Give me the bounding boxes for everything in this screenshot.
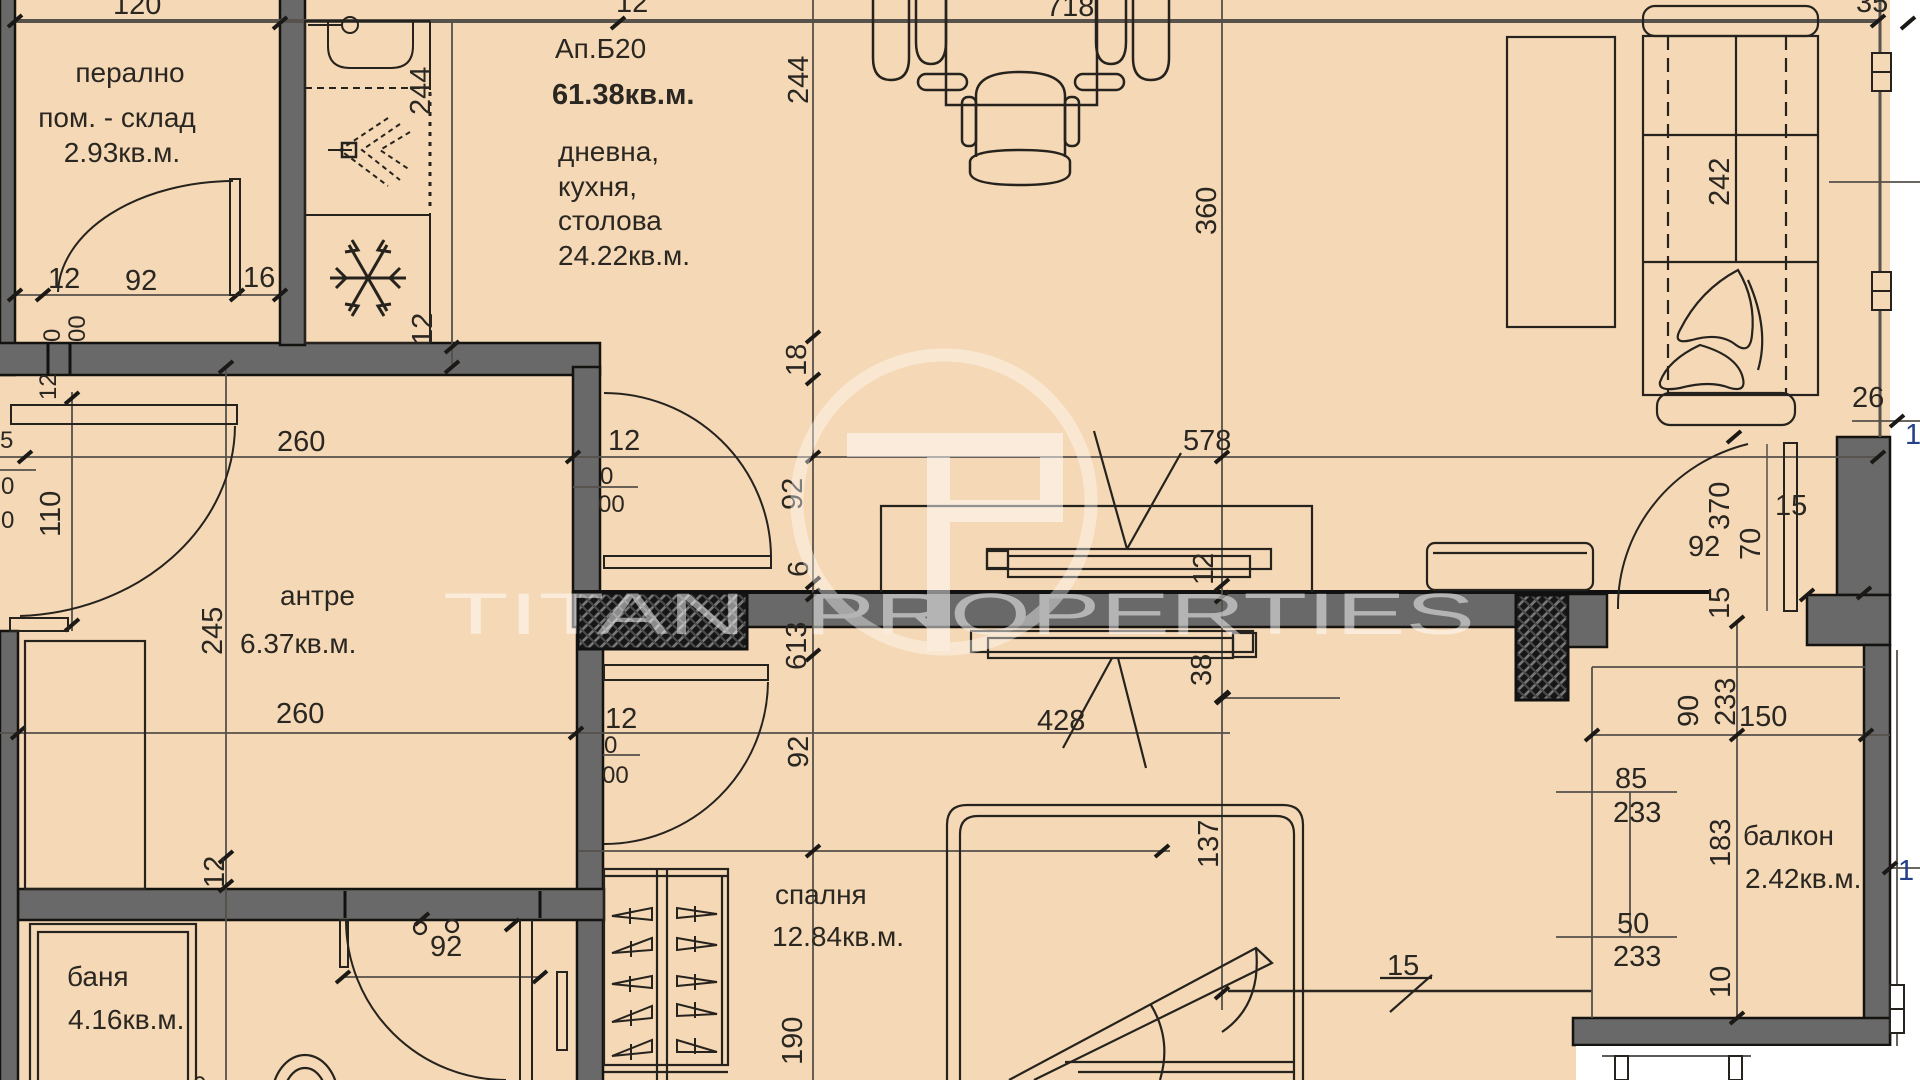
svg-text:35: 35: [1856, 0, 1888, 19]
svg-text:360: 360: [1191, 187, 1223, 235]
svg-text:38: 38: [1186, 654, 1218, 686]
svg-text:190: 190: [777, 1017, 809, 1065]
svg-text:120: 120: [113, 0, 161, 21]
svg-text:12: 12: [199, 856, 231, 888]
svg-text:перално: перално: [75, 57, 184, 88]
svg-text:12: 12: [48, 263, 80, 295]
svg-text:12: 12: [1188, 553, 1220, 585]
svg-text:4.16кв.м.: 4.16кв.м.: [68, 1004, 184, 1035]
svg-text:1: 1: [1898, 855, 1914, 887]
svg-text:12: 12: [608, 425, 640, 457]
svg-text:кухня,: кухня,: [558, 171, 637, 202]
svg-text:12: 12: [605, 703, 637, 735]
svg-text:5: 5: [0, 427, 13, 454]
svg-text:00: 00: [602, 762, 629, 789]
svg-text:столова: столова: [558, 205, 662, 236]
svg-text:12: 12: [407, 313, 439, 345]
svg-text:6.37кв.м.: 6.37кв.м.: [240, 628, 356, 659]
svg-text:137: 137: [1193, 820, 1225, 868]
svg-text:260: 260: [277, 426, 325, 458]
svg-text:0: 0: [1, 507, 14, 534]
svg-text:233: 233: [1613, 797, 1661, 829]
svg-text:0: 0: [604, 732, 617, 759]
svg-text:0: 0: [1, 473, 14, 500]
svg-text:антре: антре: [280, 580, 355, 611]
svg-text:242: 242: [1704, 158, 1736, 206]
svg-text:92: 92: [783, 736, 815, 768]
svg-text:0: 0: [193, 1072, 206, 1080]
svg-text:428: 428: [1037, 705, 1085, 737]
svg-text:12: 12: [35, 373, 62, 400]
svg-text:PROPERTIES: PROPERTIES: [805, 582, 1475, 647]
svg-text:2.93кв.м.: 2.93кв.м.: [64, 137, 180, 168]
svg-text:18: 18: [781, 344, 813, 376]
svg-text:183: 183: [1705, 819, 1737, 867]
svg-text:TITAN: TITAN: [443, 582, 746, 647]
svg-text:2.42кв.м.: 2.42кв.м.: [1745, 863, 1861, 894]
svg-text:110: 110: [35, 491, 67, 537]
svg-text:15: 15: [1704, 587, 1736, 619]
svg-text:0: 0: [600, 463, 613, 490]
svg-text:260: 260: [276, 698, 324, 730]
svg-text:244: 244: [405, 67, 437, 115]
svg-text:1: 1: [1905, 419, 1920, 451]
svg-text:10: 10: [1705, 966, 1737, 998]
svg-text:12: 12: [616, 0, 648, 19]
svg-text:70: 70: [1735, 528, 1767, 560]
svg-text:дневна,: дневна,: [558, 136, 659, 167]
svg-text:Ап.Б20: Ап.Б20: [555, 33, 646, 64]
svg-text:150: 150: [1739, 701, 1787, 733]
svg-text:спалня: спалня: [775, 879, 867, 910]
svg-text:90: 90: [1673, 695, 1705, 727]
svg-text:61.38кв.м.: 61.38кв.м.: [552, 79, 694, 111]
svg-text:92: 92: [430, 931, 462, 963]
svg-text:233: 233: [1710, 678, 1742, 726]
svg-text:пом. - склад: пом. - склад: [38, 102, 195, 133]
svg-text:92: 92: [125, 265, 157, 297]
svg-text:578: 578: [1183, 425, 1231, 457]
svg-text:26: 26: [1852, 382, 1884, 414]
svg-text:балкон: балкон: [1743, 820, 1834, 851]
svg-text:15: 15: [1387, 950, 1419, 982]
svg-text:12.84кв.м.: 12.84кв.м.: [772, 921, 904, 952]
svg-text:233: 233: [1613, 941, 1661, 973]
svg-text:16: 16: [243, 262, 275, 294]
svg-text:баня: баня: [67, 961, 129, 992]
svg-text:92: 92: [1688, 531, 1720, 563]
svg-text:245: 245: [197, 607, 229, 655]
svg-text:0: 0: [39, 329, 66, 342]
svg-text:24.22кв.м.: 24.22кв.м.: [558, 240, 690, 271]
svg-text:00: 00: [64, 315, 91, 342]
svg-text:50: 50: [1617, 908, 1649, 940]
svg-text:15: 15: [1775, 490, 1807, 522]
svg-text:244: 244: [783, 56, 815, 104]
svg-text:718: 718: [1046, 0, 1094, 23]
svg-text:370: 370: [1704, 482, 1736, 530]
svg-text:00: 00: [598, 491, 625, 518]
svg-text:85: 85: [1615, 763, 1647, 795]
